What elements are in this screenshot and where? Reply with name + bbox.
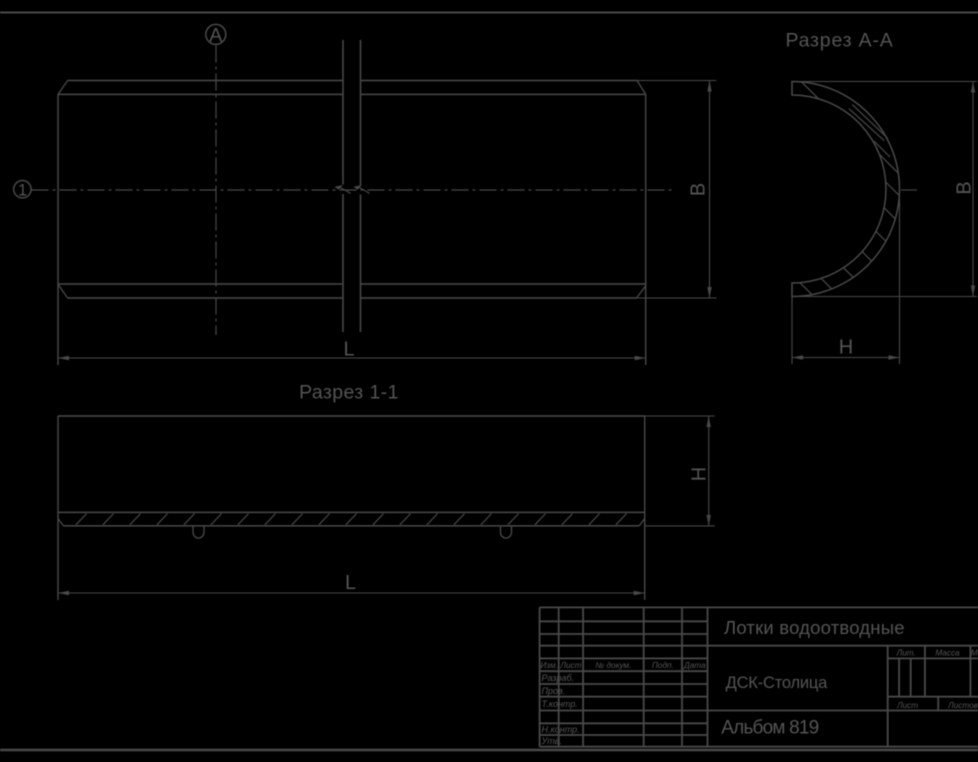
svg-text:№ докум.: № докум. (595, 661, 631, 670)
svg-text:Альбом 819: Альбом 819 (721, 718, 818, 739)
svg-text:Дата: Дата (683, 661, 706, 670)
svg-text:Утв.: Утв. (541, 736, 562, 746)
svg-text:Разраб.: Разраб. (542, 673, 575, 683)
svg-text:Разрез 1-1: Разрез 1-1 (299, 382, 399, 404)
svg-text:В: В (688, 183, 710, 196)
svg-text:1: 1 (18, 181, 27, 199)
svg-text:Листов: Листов (947, 701, 978, 710)
svg-text:Изм.: Изм. (540, 661, 557, 670)
svg-text:Т.контр.: Т.контр. (542, 699, 578, 709)
svg-text:Лит.: Лит. (896, 649, 916, 658)
svg-text:Пров.: Пров. (542, 686, 566, 696)
svg-text:Н: Н (839, 337, 853, 359)
svg-text:L: L (345, 572, 356, 594)
svg-text:Н: Н (689, 467, 711, 481)
svg-text:А: А (209, 24, 222, 46)
svg-text:Н.контр.: Н.контр. (542, 724, 580, 734)
svg-text:Лист: Лист (896, 701, 918, 710)
svg-text:Лотки водоотводные: Лотки водоотводные (724, 617, 905, 638)
svg-text:Лист: Лист (559, 661, 581, 670)
svg-text:Масса: Масса (935, 649, 960, 658)
svg-text:L: L (343, 339, 354, 361)
svg-text:Разрез А-А: Разрез А-А (785, 30, 893, 52)
svg-text:Масштаб: Масштаб (971, 649, 978, 658)
svg-text:В: В (954, 181, 976, 194)
svg-text:Подп.: Подп. (652, 661, 674, 670)
svg-text:ДСК-Столица: ДСК-Столица (726, 674, 829, 692)
